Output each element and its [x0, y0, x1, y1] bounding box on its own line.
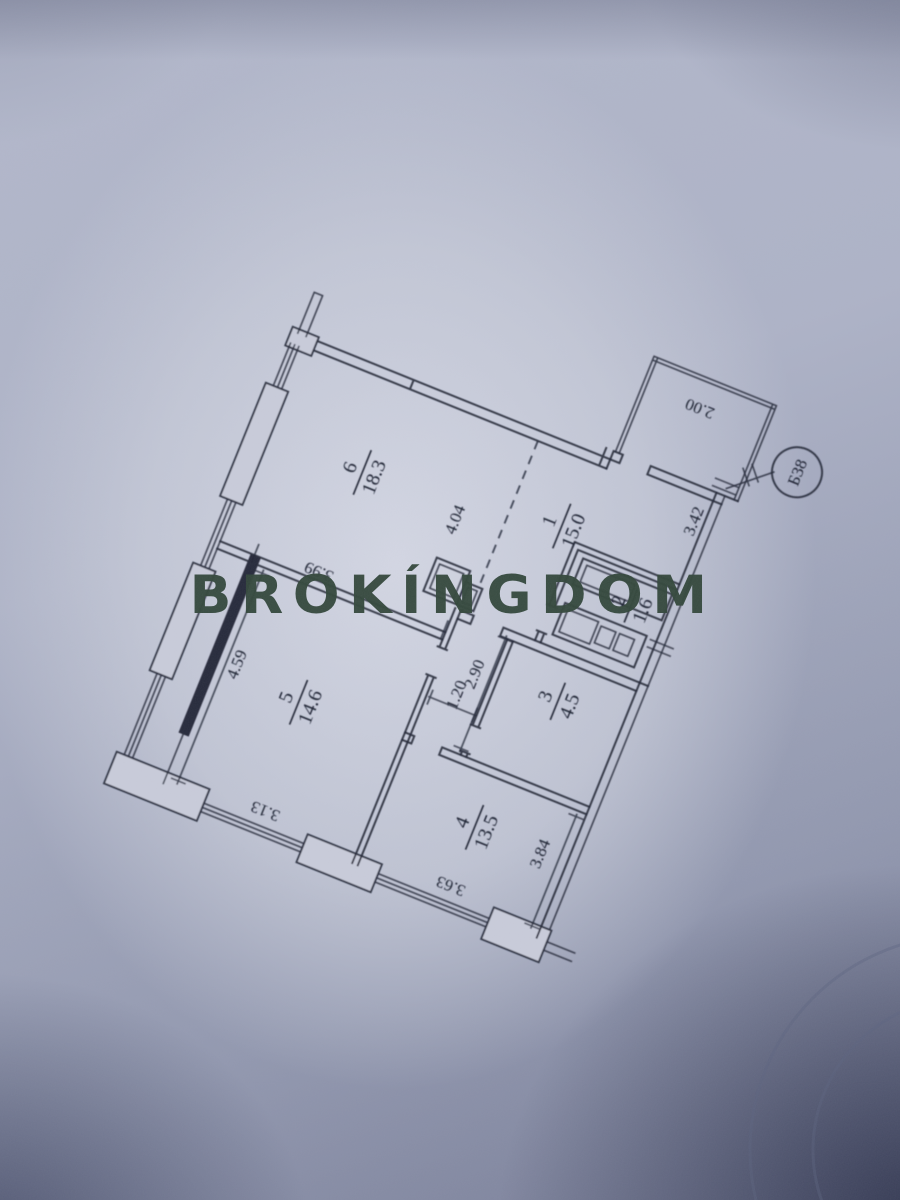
floor-plan-photo: Б38 4.04 3.99 4.59 3.13 3.63 3.84 2.90 1…	[0, 0, 900, 1200]
photo-background: Б38 4.04 3.99 4.59 3.13 3.63 3.84 2.90 1…	[0, 0, 900, 1200]
noise-overlay	[0, 0, 900, 1200]
